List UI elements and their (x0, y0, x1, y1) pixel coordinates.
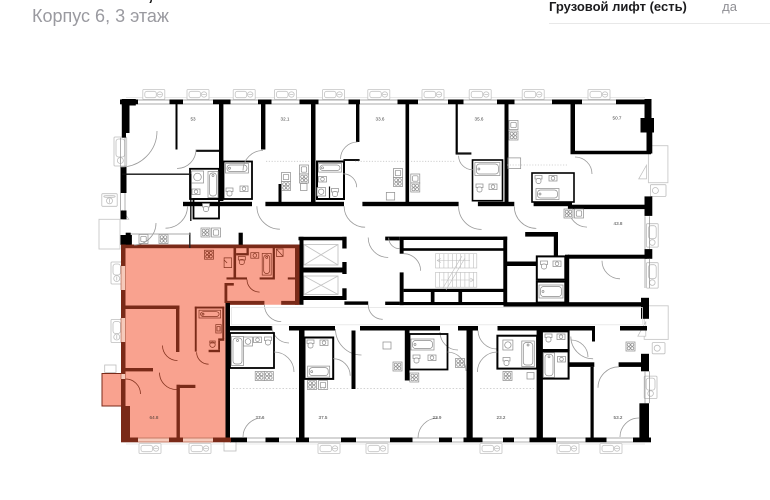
svg-text:33.6: 33.6 (376, 117, 385, 122)
svg-text:23.9: 23.9 (433, 415, 442, 420)
svg-text:64.8: 64.8 (150, 415, 159, 420)
svg-text:53.2: 53.2 (614, 415, 623, 420)
svg-text:37.5: 37.5 (319, 415, 328, 420)
svg-text:53: 53 (190, 117, 196, 122)
svg-text:35.6: 35.6 (475, 117, 484, 122)
svg-text:27.6: 27.6 (256, 415, 265, 420)
svg-text:50.7: 50.7 (613, 116, 622, 121)
svg-text:23.2: 23.2 (497, 415, 506, 420)
svg-text:32.1: 32.1 (281, 117, 290, 122)
svg-text:43.8: 43.8 (614, 221, 623, 226)
